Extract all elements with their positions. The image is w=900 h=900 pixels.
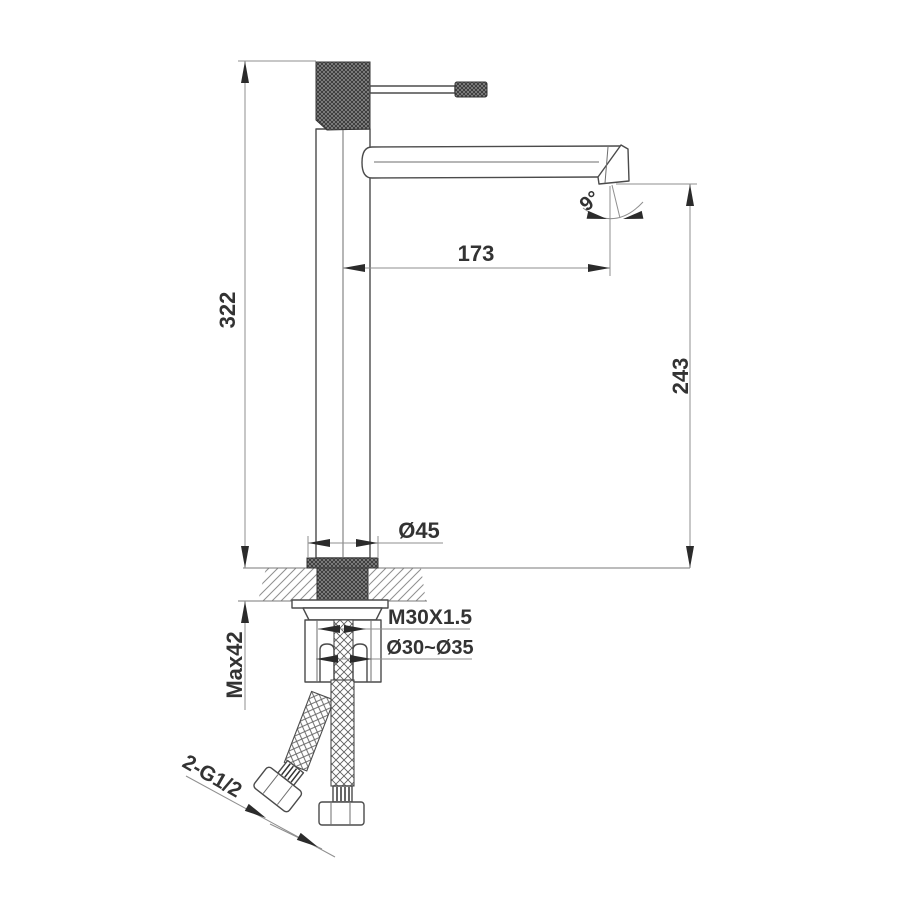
fitting-nut-straight xyxy=(319,802,364,825)
dim-label-322: 322 xyxy=(215,292,240,329)
arrow-up-icon xyxy=(241,61,249,83)
arrow-right-icon xyxy=(588,264,610,272)
faucet-cap xyxy=(316,62,370,130)
countertop-section-right xyxy=(369,568,426,601)
dim-label-173: 173 xyxy=(458,241,495,266)
faucet-handle-knurled-tip xyxy=(455,82,487,97)
drawing-page: 322 173 243 9° Ø45 M30X1.5 xyxy=(0,0,900,900)
dimension-spout-height: 243 xyxy=(616,184,697,568)
countertop-section-left xyxy=(258,568,317,601)
technical-drawing-canvas: 322 173 243 9° Ø45 M30X1.5 xyxy=(0,0,900,900)
dim-label-dia45: Ø45 xyxy=(398,518,440,543)
arc-arrow-left-icon xyxy=(622,211,643,223)
faucet-outline xyxy=(238,62,690,825)
mounting-shoulder xyxy=(303,608,382,620)
faucet-handle xyxy=(370,86,455,93)
base-flange xyxy=(307,558,378,568)
leader-arrow-icon xyxy=(297,833,320,851)
dim-label-243: 243 xyxy=(668,358,693,395)
arrow-up-icon xyxy=(241,601,249,623)
dimension-deck-thickness: Max42 xyxy=(222,601,249,710)
arrow-down-icon xyxy=(241,546,249,568)
dim-label-hole: Ø30~Ø35 xyxy=(386,637,473,659)
mounting-shank xyxy=(317,568,368,601)
arrow-up-icon xyxy=(686,184,694,206)
dim-label-max42: Max42 xyxy=(222,631,247,698)
supply-hose-angled xyxy=(248,684,343,818)
hose-braid-angled xyxy=(284,691,334,771)
arrow-down-icon xyxy=(686,546,694,568)
hose-braid-straight xyxy=(331,680,354,786)
dimension-hose-thread: 2-G1/2 xyxy=(179,750,336,857)
dim-label-m30: M30X1.5 xyxy=(388,606,472,629)
dim-label-9deg: 9° xyxy=(576,187,605,216)
dimension-spout-reach: 173 xyxy=(343,186,610,276)
mounting-washer xyxy=(292,600,388,608)
dim-label-g12: 2-G1/2 xyxy=(179,750,246,802)
dimension-overall-height: 322 xyxy=(215,61,316,568)
